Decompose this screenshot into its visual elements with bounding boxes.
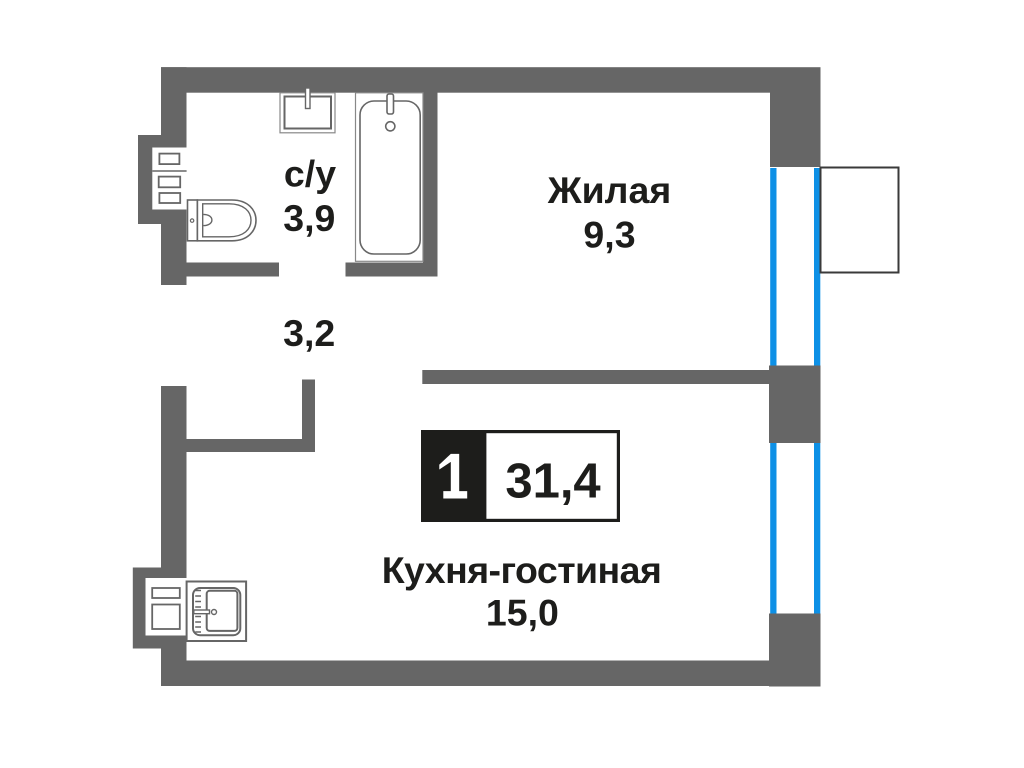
- svg-text:Жилая: Жилая: [547, 169, 672, 211]
- svg-text:31,4: 31,4: [505, 455, 600, 509]
- svg-text:15,0: 15,0: [486, 592, 559, 634]
- svg-text:с/у: с/у: [284, 153, 336, 195]
- svg-text:Кухня-гостиная: Кухня-гостиная: [382, 549, 662, 591]
- svg-text:9,3: 9,3: [583, 214, 635, 256]
- svg-text:3,9: 3,9: [283, 197, 335, 239]
- svg-text:3,2: 3,2: [283, 312, 335, 354]
